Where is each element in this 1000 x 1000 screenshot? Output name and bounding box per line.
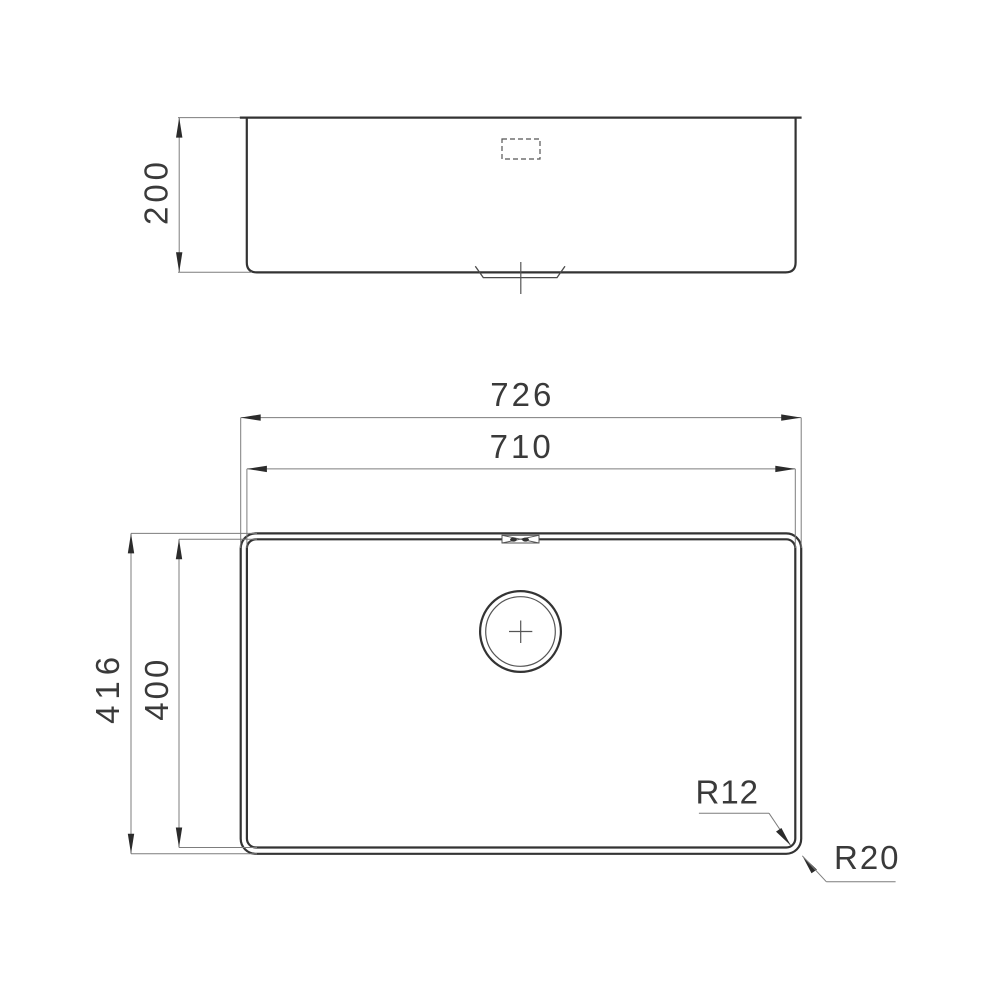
svg-text:200: 200 (138, 158, 175, 225)
svg-text:R20: R20 (834, 839, 901, 876)
svg-text:400: 400 (138, 657, 175, 721)
svg-text:726: 726 (490, 376, 554, 413)
svg-text:710: 710 (490, 428, 554, 465)
svg-text:416: 416 (89, 651, 126, 724)
svg-text:R12: R12 (696, 773, 760, 810)
